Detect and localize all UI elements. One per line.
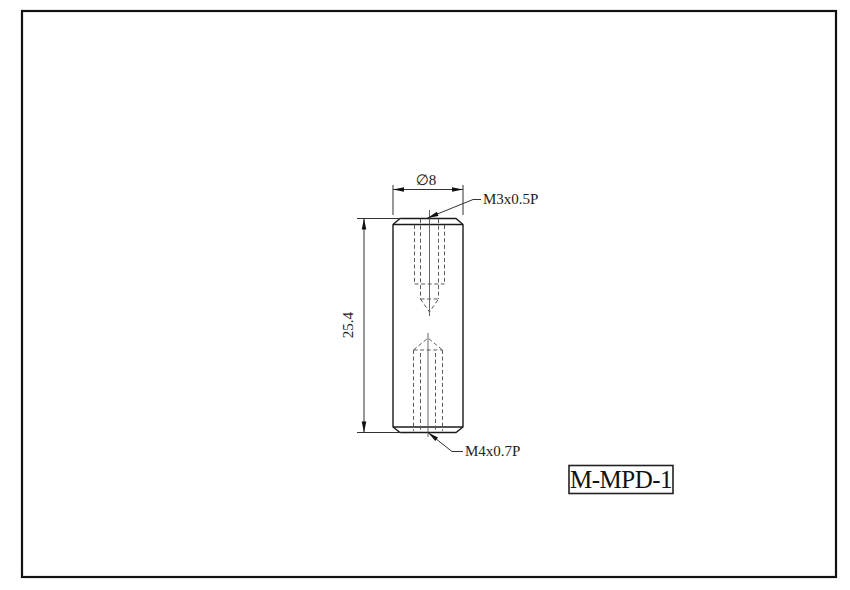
drawing-sheet: ∅8 25.4 M3x0.5P M4x0.7P M-MPD-1 [0,0,850,590]
length-dimension-text: 25.4 [340,311,356,338]
arrowhead-right [452,187,463,192]
drawing-canvas: ∅8 25.4 M3x0.5P M4x0.7P M-MPD-1 [0,0,850,590]
m3-thread-label: M3x0.5P [483,191,538,207]
arrowhead-up [362,219,367,230]
diameter-dimension: ∅8 [393,172,463,215]
centerlines [428,210,430,437]
arrowhead-left [393,187,404,192]
part-number-block: M-MPD-1 [569,466,673,494]
sheet-border [22,11,836,577]
diameter-dimension-text: ∅8 [416,172,437,188]
m4-thread-callout: M4x0.7P [428,433,520,460]
m4-thread-label: M4x0.7P [465,443,520,459]
arrowhead-down [362,422,367,433]
part-number-text: M-MPD-1 [570,466,672,493]
m3-thread-callout: M3x0.5P [428,191,539,218]
length-dimension: 25.4 [340,219,401,433]
